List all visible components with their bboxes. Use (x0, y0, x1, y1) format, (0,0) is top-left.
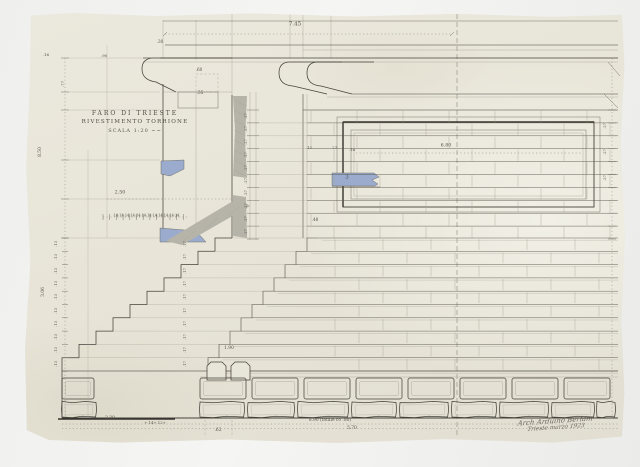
dim-label: 3 (345, 175, 349, 181)
dim-label: .16 (349, 148, 355, 152)
dim-label: 7.45 (289, 22, 301, 28)
dim-label: .30 (157, 40, 164, 44)
dim-label: 2.50 (115, 192, 126, 197)
dim-label: .17 (184, 308, 188, 314)
dim-label: .27 (604, 175, 608, 181)
dim-label: .13 (55, 254, 59, 260)
title-scale: SCALA 1:20 ~~ (69, 127, 201, 135)
dim-label: .27 (245, 126, 249, 132)
dim-label: .17 (184, 321, 188, 327)
dim-label: .17 (184, 241, 188, 247)
dim-label: .27 (245, 165, 249, 171)
dim-label: .17 (184, 268, 188, 274)
title-line-2: RIVESTIMENTO TORRIONE (69, 118, 201, 127)
dim-label: .77 (61, 81, 65, 87)
dim-label: 8.50 (39, 147, 43, 157)
dim-label: 2.30 (105, 417, 115, 421)
dim-label: .90 (101, 54, 107, 58)
dim-label: .16 (43, 53, 49, 57)
dim-label: .13 (55, 334, 59, 340)
dim-label: .27 (245, 203, 249, 209)
dim-label: .27 (245, 216, 249, 222)
dim-label: 5.70 (347, 427, 357, 431)
dim-label: +.14+.12+ (144, 421, 166, 425)
dim-label: .17 (184, 294, 188, 300)
dim-label: .13 (55, 281, 59, 287)
dim-label: .27 (604, 123, 608, 129)
dim-label: ·14·14·14·14·14·14·14·14·14·14·14·14 (113, 214, 180, 218)
dim-label: .13 (55, 361, 59, 367)
dim-label: .27 (604, 149, 608, 155)
dim-label: .27 (245, 113, 249, 119)
dim-label: 6.80 (441, 145, 452, 150)
dim-label: .27 (245, 191, 249, 197)
generated-linework (58, 14, 620, 438)
dim-label: .13 (55, 294, 59, 300)
drawing-linework (25, 13, 625, 443)
dim-label: .17 (184, 361, 188, 367)
dim-label: .13 (55, 321, 59, 327)
title-block: FARO DI TRIESTE RIVESTIMENTO TORRIONE SC… (69, 109, 201, 135)
dim-label: 8.90 (totale co .80) (309, 419, 351, 423)
dim-label: .62 (215, 429, 222, 433)
title-line-1: FARO DI TRIESTE (69, 109, 201, 118)
dim-label: .27 (331, 146, 337, 150)
dim-label: .17 (184, 334, 188, 340)
dim-label: .27 (245, 139, 249, 145)
dim-label: .27 (245, 152, 249, 158)
dim-label: .13 (55, 308, 59, 314)
dim-label: .27 (245, 178, 249, 184)
dim-label: .60 (196, 68, 203, 72)
drawing-sheet: 7.45.30.60.55.16.90.778.503.062.50·14·14… (25, 13, 625, 443)
dim-label: .13 (55, 268, 59, 274)
dim-label: .17 (184, 254, 188, 260)
dim-label: .48 (312, 218, 319, 222)
dim-label: .13 (55, 348, 59, 354)
dim-label: .17 (184, 348, 188, 354)
dim-label: .17 (184, 281, 188, 287)
dim-label: .12 (306, 146, 312, 150)
dim-label: .27 (245, 229, 249, 235)
dim-label: .13 (55, 241, 59, 247)
dim-label: 3.06 (42, 287, 46, 297)
dim-label: .55 (197, 91, 204, 95)
photo-background: 7.45.30.60.55.16.90.778.503.062.50·14·14… (0, 0, 640, 467)
dim-label: 1.90 (224, 347, 234, 351)
